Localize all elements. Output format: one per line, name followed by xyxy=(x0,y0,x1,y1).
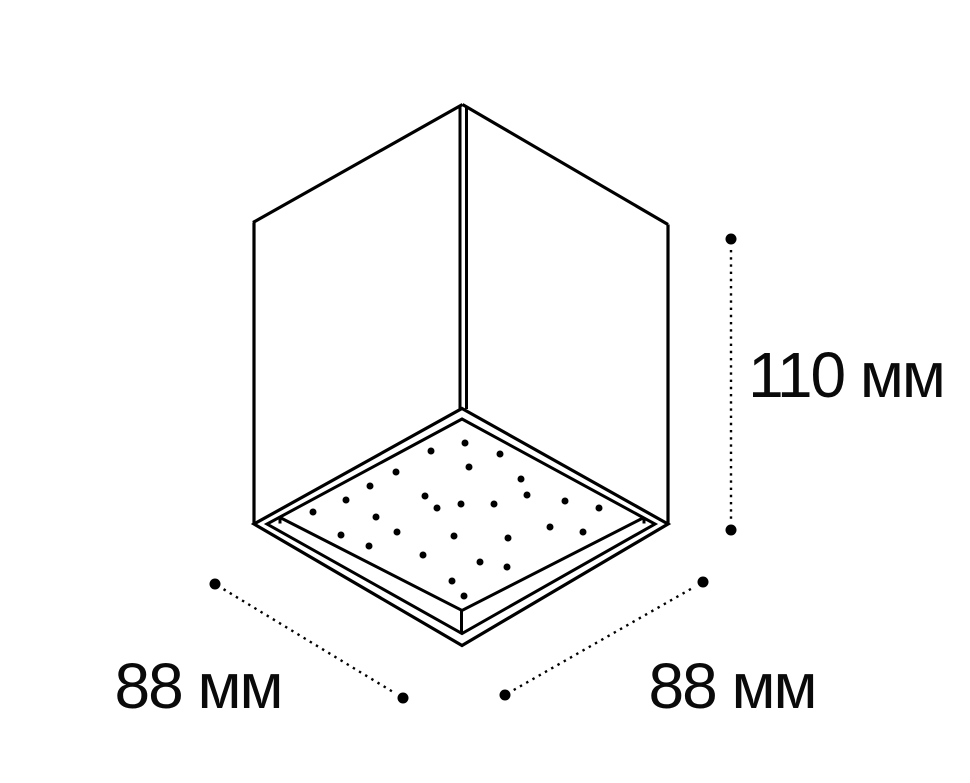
led-dot xyxy=(524,492,531,499)
base-left-dimension: 88 мм xyxy=(115,579,409,723)
led-dot xyxy=(451,533,458,540)
base-left-dim-lower-dot xyxy=(398,693,409,704)
cube-drawing xyxy=(253,105,668,646)
height-dim-bottom-dot xyxy=(726,525,737,536)
base-right-dim-lower-dot xyxy=(500,690,511,701)
led-dot xyxy=(562,498,569,505)
led-dot xyxy=(491,501,498,508)
cube-top-right-edge xyxy=(463,105,669,225)
led-dot xyxy=(310,509,317,516)
led-dot xyxy=(367,483,374,490)
led-dot xyxy=(343,497,350,504)
dimension-diagram: 110 мм 88 мм 88 мм xyxy=(0,0,970,783)
led-dot xyxy=(458,501,465,508)
base-right-dimension: 88 мм xyxy=(500,577,816,723)
led-dot xyxy=(393,469,400,476)
base-left-dim-label: 88 мм xyxy=(115,650,282,722)
led-dot xyxy=(547,524,554,531)
height-dim-label: 110 мм xyxy=(748,339,944,411)
led-dot xyxy=(449,578,456,585)
led-dot xyxy=(338,532,345,539)
base-left-dim-upper-dot xyxy=(210,579,221,590)
led-dot xyxy=(434,505,441,512)
height-dimension: 110 мм xyxy=(726,234,944,536)
led-panel xyxy=(280,440,644,634)
base-right-dim-upper-dot xyxy=(698,577,709,588)
led-dot xyxy=(461,593,468,600)
led-dot xyxy=(596,505,603,512)
luminaire-dimension-drawing: 110 мм 88 мм 88 мм xyxy=(0,0,970,783)
led-dot xyxy=(504,564,511,571)
cube-top-left-edge xyxy=(253,105,463,223)
height-dim-top-dot xyxy=(726,234,737,245)
led-dot xyxy=(373,514,380,521)
led-dot xyxy=(497,451,504,458)
led-dot xyxy=(428,448,435,455)
led-dot xyxy=(505,535,512,542)
base-right-dim-label: 88 мм xyxy=(649,650,816,722)
led-dot xyxy=(477,559,484,566)
led-dot xyxy=(580,529,587,536)
bottom-rim-inner xyxy=(267,419,655,634)
led-dot xyxy=(462,440,469,447)
led-dot xyxy=(466,464,473,471)
led-dot xyxy=(394,529,401,536)
led-dot xyxy=(366,543,373,550)
led-dot xyxy=(422,493,429,500)
led-dot xyxy=(420,552,427,559)
led-dot xyxy=(518,476,525,483)
